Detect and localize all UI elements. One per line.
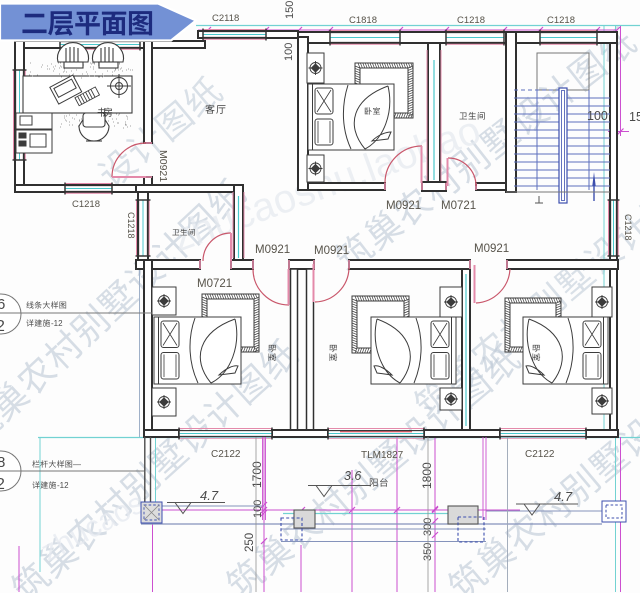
svg-text:TLM1827: TLM1827 xyxy=(361,450,404,461)
svg-text:C2122: C2122 xyxy=(525,449,555,460)
svg-text:100: 100 xyxy=(283,43,295,61)
svg-text:C1218: C1218 xyxy=(623,214,633,241)
svg-text:C1818: C1818 xyxy=(349,15,377,26)
svg-text:C1218: C1218 xyxy=(547,15,575,26)
svg-text:C1218: C1218 xyxy=(457,15,485,26)
svg-text:2: 2 xyxy=(0,476,5,493)
svg-text:M0721: M0721 xyxy=(441,200,476,212)
svg-text:M0921: M0921 xyxy=(314,245,349,257)
svg-text:250: 250 xyxy=(244,533,256,552)
svg-text:M0921: M0921 xyxy=(474,243,509,255)
svg-text:1800: 1800 xyxy=(420,462,434,489)
svg-text:-12: -12 xyxy=(51,319,63,328)
svg-text:C2122: C2122 xyxy=(211,449,241,460)
svg-text:150: 150 xyxy=(629,110,640,124)
svg-text:1700: 1700 xyxy=(250,461,264,488)
svg-text:M0721: M0721 xyxy=(197,278,232,290)
svg-text:-12: -12 xyxy=(57,481,69,490)
svg-text:2: 2 xyxy=(0,318,5,335)
svg-text:100: 100 xyxy=(587,109,608,123)
svg-text:150: 150 xyxy=(284,1,296,19)
svg-text:8: 8 xyxy=(0,454,5,471)
svg-text:M0921: M0921 xyxy=(255,244,290,256)
svg-text:6: 6 xyxy=(0,296,5,313)
svg-text:4.7: 4.7 xyxy=(200,488,219,503)
svg-text:100: 100 xyxy=(252,500,264,518)
svg-text:4.7: 4.7 xyxy=(554,489,573,504)
svg-text:C1218: C1218 xyxy=(126,212,136,239)
svg-text:C2118: C2118 xyxy=(212,13,239,24)
svg-text:3.6: 3.6 xyxy=(344,469,361,483)
svg-text:C1218: C1218 xyxy=(72,199,100,210)
svg-text:M0921: M0921 xyxy=(386,200,421,212)
svg-text:—: — xyxy=(73,460,81,469)
svg-text:M0921: M0921 xyxy=(157,150,169,182)
